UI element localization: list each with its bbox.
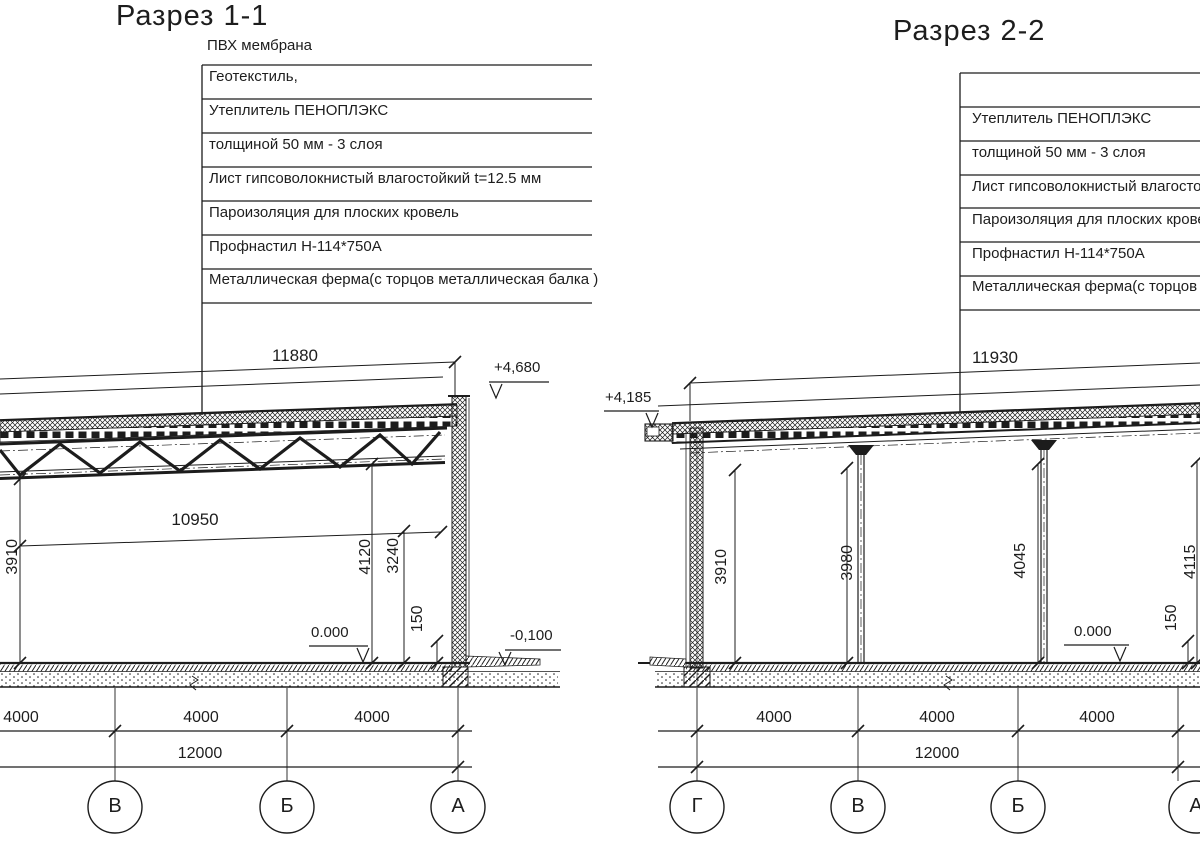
- grid-bubble-label: А: [1174, 795, 1200, 817]
- wall-right-section: [690, 428, 703, 668]
- callout-row: Металлическая ферма(с торцов металлическ…: [209, 272, 598, 302]
- wall-left-section: [452, 396, 466, 667]
- dim-height-mid: 4120: [357, 522, 375, 592]
- callout-row: толщиной 50 мм - 3 слоя: [972, 145, 1146, 175]
- callout-row: Металлическая ферма(с торцов м: [972, 279, 1200, 309]
- grid-bubble-label: В: [93, 795, 137, 817]
- grid-bubble-label: Б: [265, 795, 309, 817]
- dim-height-right: 3240: [385, 521, 403, 591]
- callout-row: Лист гипсоволокнистый влагостойкий t=12.…: [209, 171, 541, 201]
- axis-dim: 4000: [729, 709, 819, 727]
- axis-dim: 4000: [156, 709, 246, 727]
- grid-bubble-label: В: [836, 795, 880, 817]
- grid-bubble-label: Г: [675, 795, 719, 817]
- total-dim-right: 12000: [892, 745, 982, 763]
- total-dim-left: 12000: [155, 745, 245, 763]
- roof-assembly-right: [645, 403, 1200, 453]
- dim-span-top-left: 11880: [250, 347, 340, 366]
- callout-row: Пароизоляция для плоских кровель: [209, 205, 459, 235]
- callout-row: Геотекстиль,: [209, 69, 298, 99]
- floor-slab-right: [638, 657, 1200, 690]
- level-floor-left: 0.000: [311, 625, 349, 642]
- axis-dim: 4000: [1052, 709, 1142, 727]
- callout-row: Лист гипсоволокнистый влагостой: [972, 179, 1200, 209]
- callout-row: Утеплитель ПЕНОПЛЭКС: [209, 103, 388, 133]
- callout-row: Профнастил Н-114*750А: [209, 239, 382, 269]
- dim-height-3: 4045: [1012, 526, 1030, 596]
- callout-row: Профнастил Н-114*750А: [972, 246, 1145, 276]
- drawing-sheet: Разрез 1-1 ПВХ мембрана Геотекстиль, Уте…: [0, 0, 1200, 844]
- section-title-left: Разрез 1-1: [116, 1, 268, 33]
- level-ground-left: -0,100: [510, 628, 553, 645]
- grid-bubble-label: А: [436, 795, 480, 817]
- dim-height-1: 3910: [713, 532, 731, 602]
- axis-dim: 4000: [0, 709, 66, 727]
- dim-plinth-right: 150: [1163, 583, 1181, 653]
- dim-height-2: 3980: [839, 528, 857, 598]
- dim-height-left: 3910: [4, 522, 22, 592]
- section-title-right: Разрез 2-2: [893, 16, 1045, 48]
- callout-row: Утеплитель ПЕНОПЛЭКС: [972, 111, 1151, 141]
- axis-dim: 4000: [892, 709, 982, 727]
- callout-row: толщиной 50 мм - 3 слоя: [209, 137, 383, 167]
- dim-span-top-right: 11930: [950, 349, 1040, 368]
- dim-height-4: 4115: [1182, 527, 1200, 597]
- dim-plinth-left: 150: [409, 584, 427, 654]
- callout-row: Пароизоляция для плоских кровел: [972, 212, 1200, 242]
- level-floor-right: 0.000: [1074, 624, 1112, 641]
- axis-dim: 4000: [327, 709, 417, 727]
- callout-top-note: ПВХ мембрана: [207, 38, 312, 55]
- floor-slab-left: [0, 656, 560, 690]
- grid-bubble-label: Б: [996, 795, 1040, 817]
- dim-clear-span-left: 10950: [150, 511, 240, 530]
- level-roof-right: +4,185: [605, 390, 651, 407]
- level-roof-left: +4,680: [494, 360, 540, 377]
